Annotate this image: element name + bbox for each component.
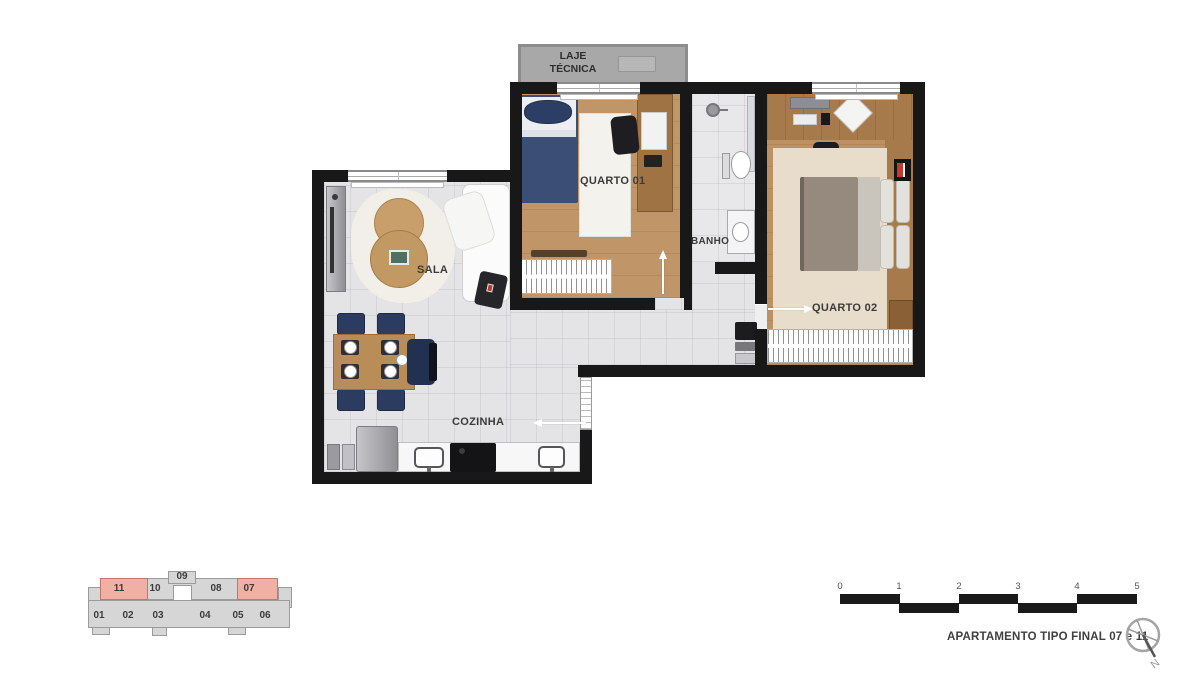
plate — [384, 365, 397, 378]
room-label-quarto-02: QUARTO 02 — [812, 302, 877, 314]
double-bed-duvet — [800, 177, 858, 271]
laje-label-line2: TÉCNICA — [550, 63, 597, 75]
desk-laptop — [644, 155, 662, 167]
keyplan-tab — [152, 627, 167, 636]
floor-plan-page: LAJE TÉCNICA SALA COZINHA — [0, 0, 1200, 700]
scale-tick-5: 5 — [1131, 581, 1143, 592]
compass-north-label: N — [1149, 657, 1163, 671]
table-tray — [389, 250, 409, 265]
kitchen-sink-2 — [538, 446, 565, 468]
keyplan-label-04: 04 — [196, 610, 214, 621]
scalebar-segment — [899, 603, 959, 613]
fridge — [356, 426, 398, 472]
quarto-01-door-arrow-head — [659, 250, 667, 259]
window-blind — [560, 94, 638, 100]
dining-chair — [377, 313, 405, 335]
small-appliance — [327, 444, 340, 470]
scalebar-segment — [1077, 594, 1137, 604]
room-label-laje: LAJE TÉCNICA — [520, 50, 626, 76]
plate — [344, 341, 357, 354]
washer-stack-mid — [735, 342, 757, 351]
keyplan-tab — [228, 627, 246, 635]
scalebar-segment — [840, 594, 900, 604]
entry-door-arrow-head — [533, 419, 542, 427]
wardrobe-quarto-02 — [767, 329, 913, 363]
dining-chair — [337, 389, 365, 411]
room-label-cozinha: COZINHA — [452, 416, 504, 428]
bed-pillow — [880, 179, 894, 223]
cooktop — [450, 443, 496, 472]
wall-segment — [578, 365, 925, 377]
scalebar-segment — [959, 594, 1018, 604]
scale-tick-4: 4 — [1071, 581, 1083, 592]
bed-pillow — [896, 179, 910, 223]
window-sala — [348, 170, 447, 182]
desk-gadget — [821, 113, 830, 125]
scale-tick-0: 0 — [834, 581, 846, 592]
single-bed-fold — [520, 130, 576, 137]
wall-segment — [510, 298, 655, 310]
wall-segment — [680, 94, 692, 298]
keyplan-label-05: 05 — [229, 610, 247, 621]
washer-stack-top — [735, 322, 757, 340]
dining-chair — [337, 313, 365, 335]
keyplan-tab — [92, 627, 110, 635]
wall-segment — [580, 430, 592, 472]
double-bed-sheet — [858, 177, 880, 271]
keyplan-label-07: 07 — [240, 583, 258, 594]
laje-label-line1: LAJE — [560, 50, 587, 62]
compass-icon: N — [1118, 612, 1174, 672]
window-quarto-02 — [812, 82, 900, 94]
bath-basin — [732, 222, 749, 242]
washer-stack-low — [735, 353, 757, 364]
scale-tick-2: 2 — [953, 581, 965, 592]
keyplan-label-06: 06 — [256, 610, 274, 621]
desk-chair-quarto-01 — [610, 115, 640, 156]
keyplan-label-11: 11 — [110, 583, 128, 594]
wall-segment — [913, 82, 925, 377]
scale-tick-3: 3 — [1012, 581, 1024, 592]
kitchen-sink — [414, 447, 444, 468]
keyplan-label-01: 01 — [90, 610, 108, 621]
keyplan-label-03: 03 — [149, 610, 167, 621]
bed-pillow — [896, 225, 910, 269]
bed-pillow — [880, 225, 894, 269]
room-label-quarto-01: QUARTO 01 — [580, 175, 645, 187]
wall-segment — [510, 82, 522, 310]
shower-arm — [718, 109, 728, 111]
window-blind — [815, 94, 898, 100]
floor-hall — [510, 310, 755, 365]
wall-segment — [312, 170, 324, 484]
single-bed-pillow — [524, 100, 572, 124]
speaker-dot — [332, 194, 338, 200]
quarto-02-door-arrow — [768, 308, 806, 310]
dining-bench-back — [429, 343, 437, 381]
scale-tick-1: 1 — [893, 581, 905, 592]
doorway-quarto-01 — [655, 298, 684, 310]
room-label-banho: BANHO — [691, 236, 729, 247]
wall-segment — [312, 472, 592, 484]
plate — [384, 341, 397, 354]
window-blind — [351, 182, 444, 188]
wall-segment — [755, 329, 767, 377]
tv-screen — [330, 207, 334, 273]
small-appliance — [342, 444, 355, 470]
keyplan-label-08: 08 — [207, 583, 225, 594]
wall-segment — [640, 82, 812, 94]
scalebar-segment — [1018, 603, 1077, 613]
foot-bench — [531, 250, 587, 257]
wall-segment — [755, 82, 767, 304]
window-quarto-01 — [557, 82, 640, 94]
keyplan-label-10: 10 — [146, 583, 164, 594]
desk-pad — [793, 114, 817, 125]
keyplan-label-09: 09 — [173, 571, 191, 582]
toilet-tank — [722, 153, 730, 179]
quarto-01-door-arrow — [662, 258, 664, 294]
desk-papers — [641, 112, 667, 150]
plate — [344, 365, 357, 378]
dining-chair — [377, 389, 405, 411]
keyplan-notch — [173, 585, 192, 600]
wall-segment — [684, 298, 692, 310]
tv-rack — [326, 186, 346, 292]
wall-tv-red-detail — [897, 163, 905, 177]
wardrobe-quarto-01 — [520, 259, 612, 294]
room-label-sala: SALA — [417, 264, 448, 276]
keyplan-label-02: 02 — [119, 610, 137, 621]
entry-door-arrow — [542, 422, 586, 424]
